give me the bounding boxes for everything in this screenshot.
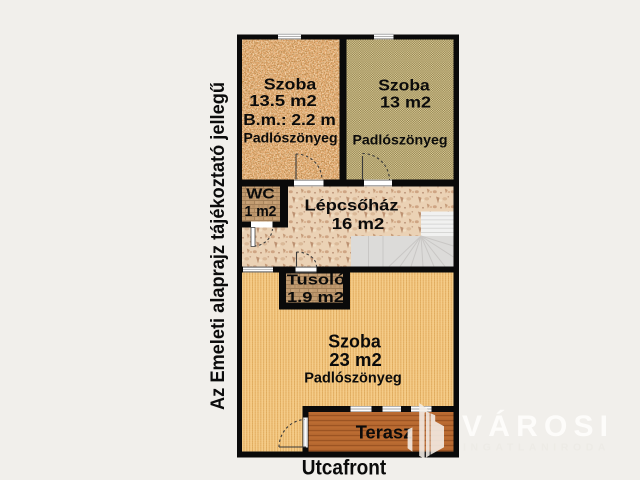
svg-text:WC: WC: [246, 186, 275, 203]
svg-text:23 m2: 23 m2: [329, 350, 382, 370]
svg-text:Padlószönyeg: Padlószönyeg: [244, 130, 338, 146]
svg-text:Az Emeleti alaprajz tájékoztat: Az Emeleti alaprajz tájékoztató jellegű: [208, 82, 229, 410]
svg-text:Utcafront: Utcafront: [302, 457, 387, 480]
svg-text:Terasz: Terasz: [356, 423, 413, 443]
svg-text:13.5 m2: 13.5 m2: [249, 93, 317, 110]
svg-text:13 m2: 13 m2: [380, 95, 431, 112]
svg-text:INGATLANIRODA: INGATLANIRODA: [463, 442, 610, 454]
svg-text:Lépcsőház: Lépcsőház: [305, 198, 399, 215]
svg-text:Padlószönyeg: Padlószönyeg: [304, 370, 402, 387]
svg-text:Szoba: Szoba: [328, 332, 381, 352]
svg-text:1 m2: 1 m2: [245, 203, 277, 220]
svg-text:Szoba: Szoba: [378, 78, 430, 95]
svg-text:1.9 m2: 1.9 m2: [287, 289, 344, 306]
svg-text:Padlószönyeg: Padlószönyeg: [353, 132, 448, 148]
svg-text:16 m2: 16 m2: [332, 216, 385, 233]
svg-text:B.m.: 2.2 m: B.m.: 2.2 m: [243, 112, 336, 129]
svg-text:Tusoló: Tusoló: [287, 272, 346, 289]
svg-text:Szoba: Szoba: [264, 77, 317, 94]
svg-text:VÁROSI: VÁROSI: [462, 409, 614, 443]
